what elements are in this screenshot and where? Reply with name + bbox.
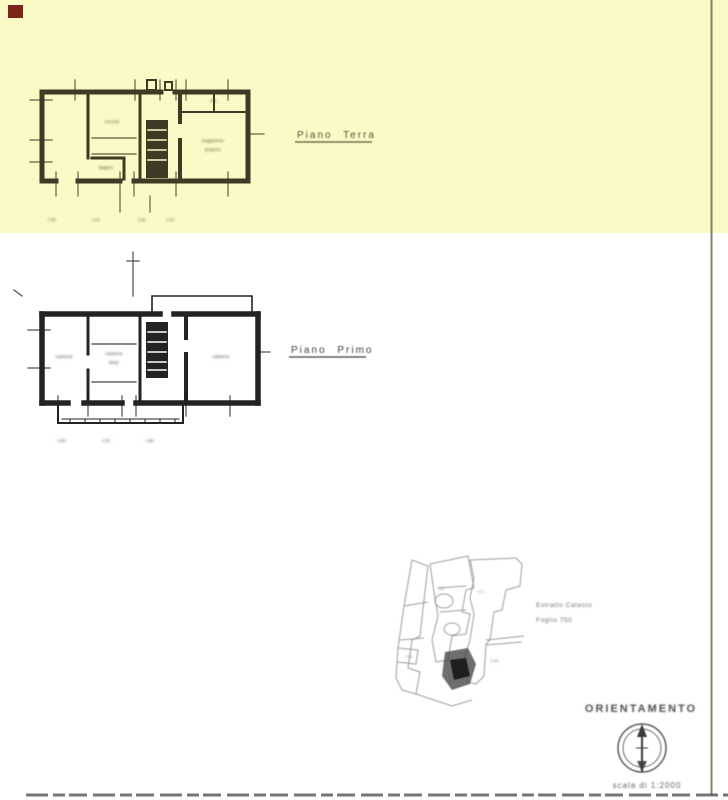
room-label-storage: rip. <box>210 98 218 103</box>
compass-icon <box>618 724 666 772</box>
parcel-boundary <box>396 560 428 694</box>
dimension-ticks-left <box>28 330 50 368</box>
parcel-pond <box>444 623 460 635</box>
first-floor-plan <box>14 252 270 423</box>
room-label-mid2: letto <box>109 360 119 365</box>
parcel-line <box>416 694 472 706</box>
scanned-drawing-page: rip. cucina bagno soggiorno pranzo 3.50 … <box>0 0 728 800</box>
orientation-scale: scala di 1:2000 <box>613 781 682 790</box>
site-note-line2: Foglio 750 <box>536 617 572 624</box>
balcony-rail <box>58 403 183 423</box>
room-label-living: soggiorno <box>202 138 225 143</box>
staircase <box>146 120 168 178</box>
room-label-dining: pranzo <box>205 147 221 152</box>
dimension-ticks-bottom <box>58 396 230 416</box>
dimension-text: 3.50 <box>58 438 67 443</box>
site-plan-note: Estratto Catasto Foglio 750 <box>536 602 592 624</box>
room-label-bath: bagno <box>99 165 113 170</box>
parcel-boundary <box>430 556 474 662</box>
room-label-right: camera <box>213 354 230 359</box>
road-lines <box>486 636 524 645</box>
yellow-highlight-band <box>0 0 728 233</box>
first-floor-title: Piano Primo <box>289 345 373 357</box>
drawing-canvas: rip. cucina bagno soggiorno pranzo 3.50 … <box>0 0 728 800</box>
dimension-text: 3.50 <box>48 217 57 222</box>
room-label-left: camera <box>56 354 73 359</box>
dimension-line-top <box>127 252 139 296</box>
dimension-text: 2.80 <box>146 438 155 443</box>
parcel-number: 971 <box>478 589 485 594</box>
orientation-title: ORIENTAMENTO <box>585 703 697 715</box>
first-floor-title-text: Piano Primo <box>291 345 373 356</box>
ground-floor-title: Piano Terra <box>295 130 376 142</box>
site-plan <box>396 556 524 706</box>
dimension-text: 4.20 <box>92 217 101 222</box>
dimension-text: 4.20 <box>102 438 111 443</box>
dimension-text: 1.10 <box>166 217 175 222</box>
site-note-line1: Estratto Catasto <box>536 602 592 609</box>
parcel-number: 146 <box>438 586 445 591</box>
parcel-number: 258 <box>406 654 413 659</box>
parcel-number: 1038 <box>490 658 500 663</box>
room-label-kitchen: cucina <box>105 119 120 124</box>
corner-marker <box>8 5 23 18</box>
parcel-pond <box>435 594 453 608</box>
dimension-text: 2.80 <box>138 217 147 222</box>
dimension-slash <box>14 290 22 296</box>
compass-north-arrow <box>637 724 647 737</box>
room-label-mid1: camera <box>106 351 123 356</box>
ground-floor-title-text: Piano Terra <box>297 130 376 141</box>
